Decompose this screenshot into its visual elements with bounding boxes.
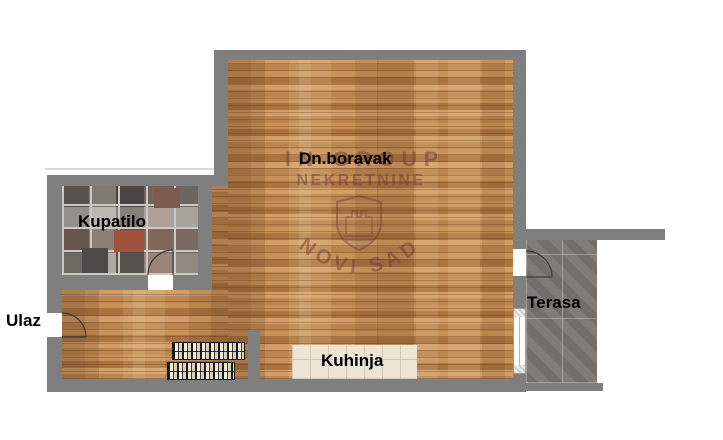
entrance-label: Ulaz [6, 311, 41, 331]
living-room-label: Dn.boravak [299, 149, 392, 169]
floorplan: IN GROUP NEKRETNINE NOVI SAD [0, 0, 723, 440]
bathroom-label: Kupatilo [78, 212, 146, 232]
terrace-door-arc [526, 251, 552, 277]
wardrobe [167, 362, 235, 380]
kitchen-label: Kuhinja [321, 351, 383, 371]
entrance-door-arc [62, 313, 86, 337]
wardrobe [172, 342, 245, 360]
bathroom-door-arc [148, 250, 173, 275]
terrace-label: Terasa [527, 293, 581, 313]
